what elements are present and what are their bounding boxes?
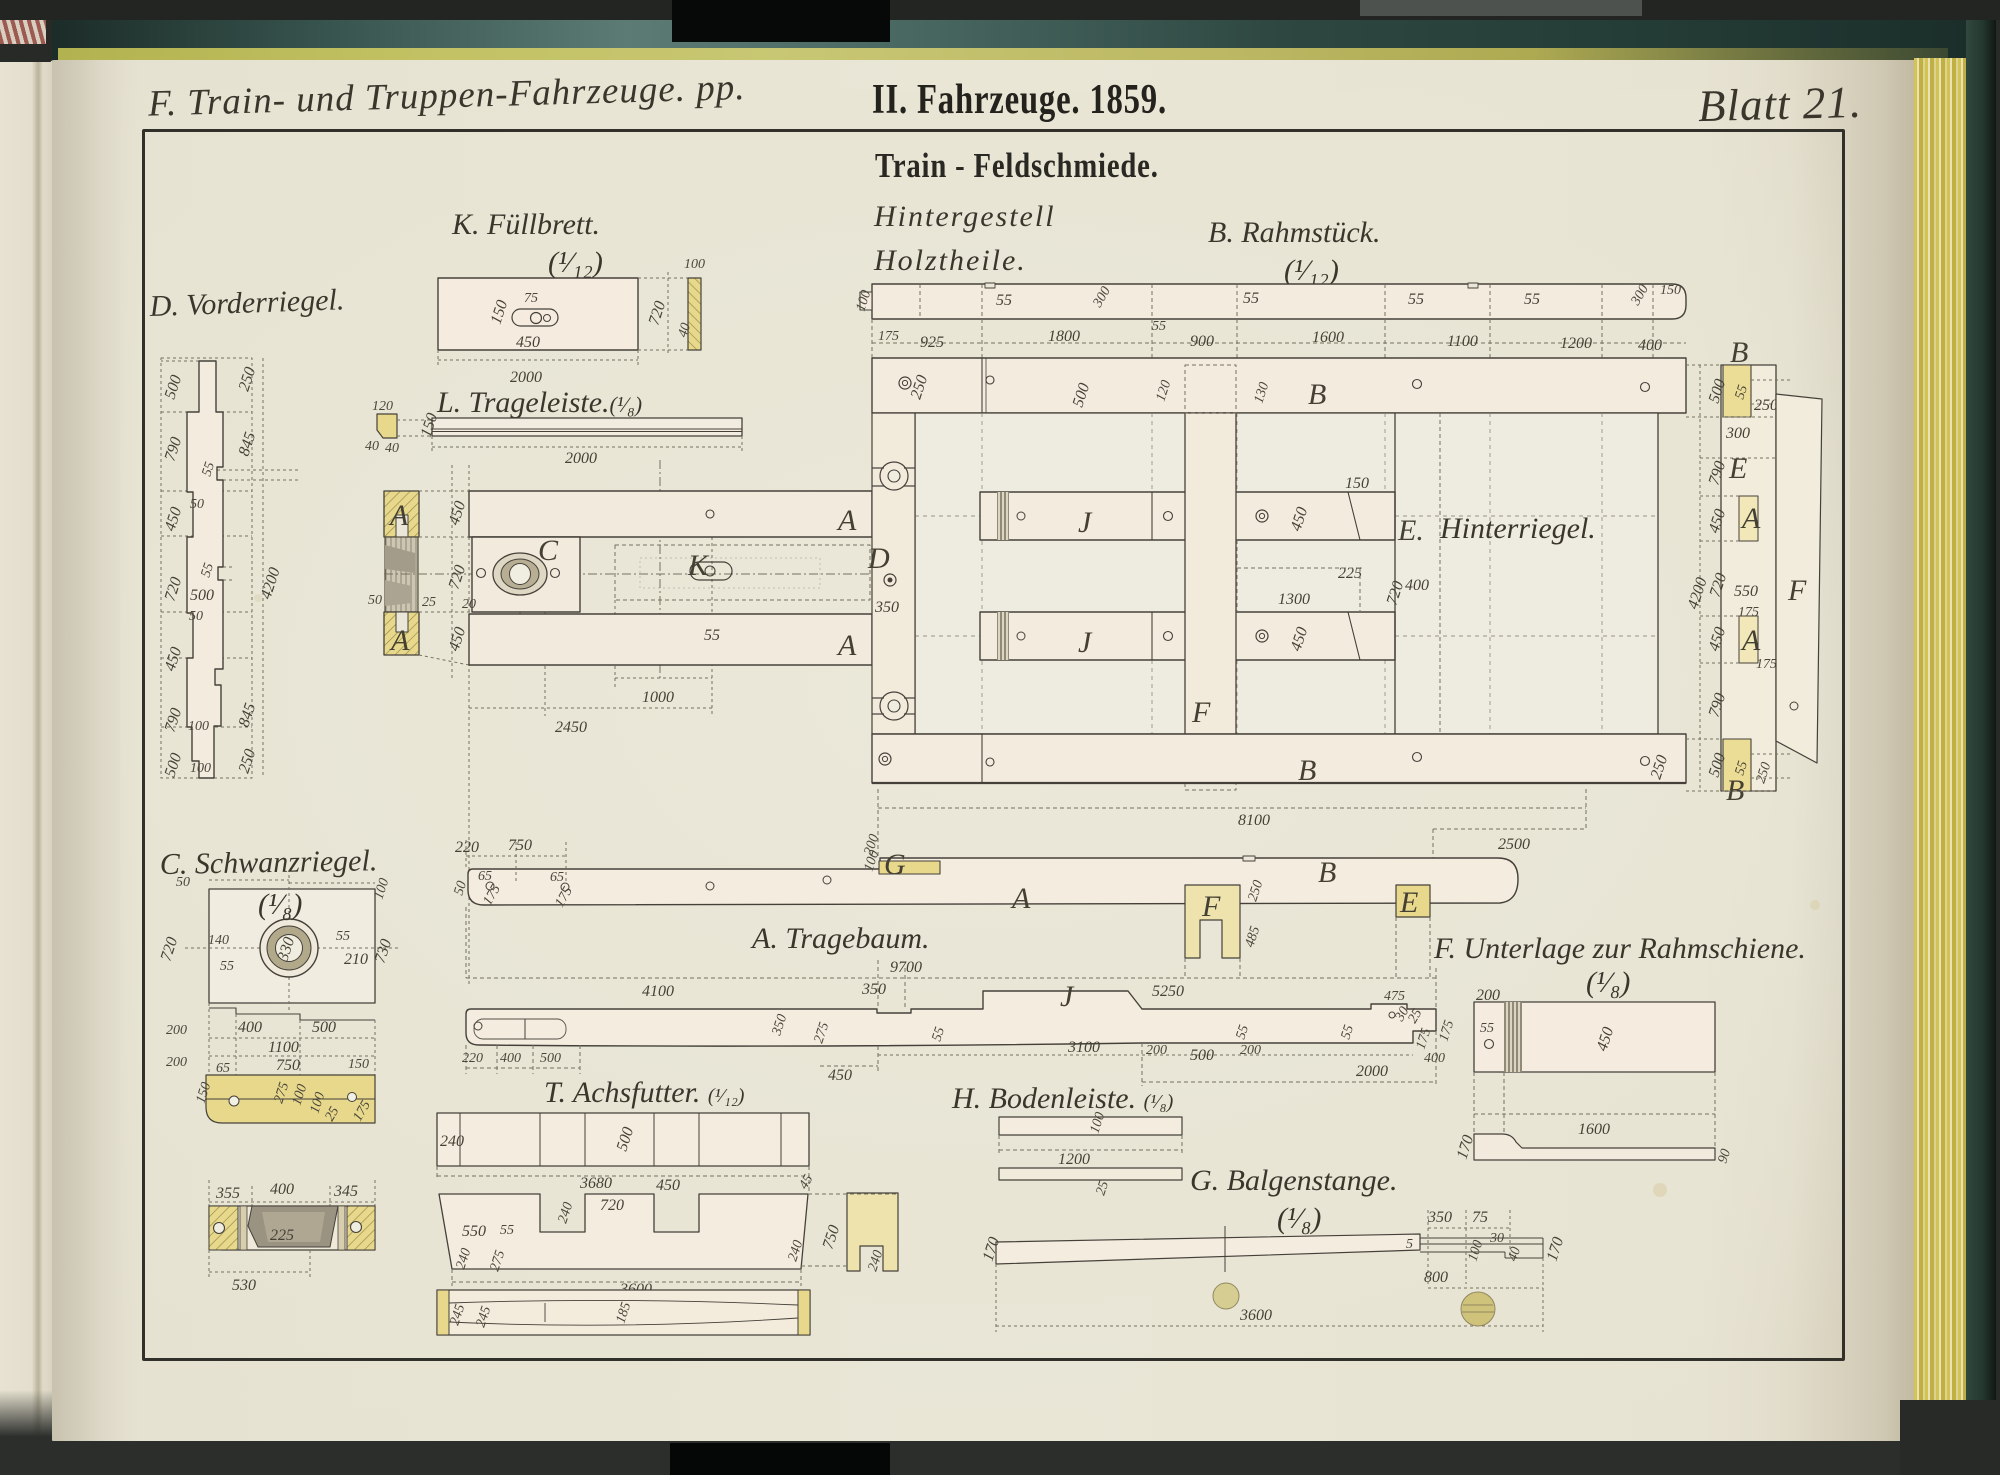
svg-text:175: 175 [1756, 657, 1777, 672]
svg-text:(¹⁄₁₂): (¹⁄₁₂) [548, 246, 603, 279]
svg-text:Holztheile.: Holztheile. [873, 244, 1027, 277]
svg-text:750: 750 [820, 1223, 844, 1251]
svg-text:(¹⁄₈): (¹⁄₈) [1586, 966, 1630, 999]
svg-text:450: 450 [656, 1177, 680, 1194]
svg-text:4100: 4100 [642, 983, 674, 1000]
svg-text:55: 55 [1152, 319, 1166, 334]
svg-text:355: 355 [215, 1185, 240, 1202]
svg-text:8100: 8100 [1238, 812, 1270, 829]
svg-text:400: 400 [1638, 337, 1662, 354]
svg-text:400: 400 [1424, 1051, 1445, 1066]
svg-text:200: 200 [166, 1023, 187, 1038]
svg-text:450: 450 [516, 334, 540, 351]
svg-text:1100: 1100 [1447, 333, 1478, 350]
svg-text:750: 750 [276, 1057, 300, 1074]
svg-text:C: C [538, 534, 559, 567]
svg-text:720: 720 [158, 935, 182, 963]
svg-text:120: 120 [372, 399, 393, 414]
svg-text:1600: 1600 [1312, 329, 1344, 346]
svg-text:Hintergestell: Hintergestell [873, 200, 1056, 233]
svg-text:3100: 3100 [1067, 1039, 1100, 1056]
svg-text:175: 175 [1738, 605, 1759, 620]
svg-text:25: 25 [1094, 1179, 1113, 1197]
svg-text:A: A [389, 624, 410, 657]
svg-text:100: 100 [372, 877, 393, 902]
svg-text:1000: 1000 [642, 689, 674, 706]
svg-text:F: F [1201, 890, 1221, 923]
svg-text:1200: 1200 [1560, 335, 1592, 352]
svg-text:450: 450 [828, 1067, 852, 1084]
svg-text:2000: 2000 [565, 450, 597, 467]
svg-text:500: 500 [540, 1051, 561, 1066]
svg-text:150: 150 [1660, 283, 1681, 298]
svg-text:800: 800 [1424, 1269, 1448, 1286]
svg-text:A: A [388, 499, 409, 532]
svg-text:350: 350 [874, 599, 899, 616]
svg-text:500: 500 [312, 1019, 336, 1036]
svg-text:75: 75 [1472, 1209, 1488, 1226]
svg-text:350: 350 [861, 981, 886, 998]
svg-text:(¹⁄₁₂): (¹⁄₁₂) [1284, 254, 1339, 287]
svg-text:E: E [1728, 452, 1747, 485]
svg-text:E: E [1399, 886, 1418, 919]
svg-text:200: 200 [1240, 1043, 1261, 1058]
svg-text:65: 65 [550, 870, 564, 885]
svg-text:400: 400 [500, 1051, 521, 1066]
svg-text:790: 790 [162, 706, 186, 734]
svg-text:845: 845 [236, 701, 260, 729]
svg-text:1200: 1200 [1058, 1151, 1090, 1168]
svg-text:475: 475 [1384, 989, 1405, 1004]
svg-text:450: 450 [162, 505, 186, 533]
svg-text:250: 250 [236, 747, 260, 775]
svg-text:A: A [1010, 882, 1031, 915]
svg-text:55: 55 [1408, 291, 1424, 308]
svg-text:Hinterriegel.: Hinterriegel. [1439, 512, 1596, 545]
svg-text:350: 350 [1427, 1209, 1452, 1226]
svg-text:450: 450 [162, 645, 186, 673]
svg-text:900: 900 [1190, 333, 1214, 350]
svg-text:1600: 1600 [1578, 1121, 1610, 1138]
svg-text:100: 100 [190, 761, 211, 776]
svg-text:65: 65 [478, 869, 492, 884]
svg-text:55: 55 [336, 929, 350, 944]
svg-text:55: 55 [704, 627, 720, 644]
svg-text:450: 450 [446, 499, 470, 527]
svg-text:220: 220 [462, 1051, 483, 1066]
svg-text:T. Achsfutter. (¹⁄₁₂): T. Achsfutter. (¹⁄₁₂) [544, 1076, 745, 1109]
svg-text:G: G [884, 848, 906, 881]
svg-text:55: 55 [500, 1223, 514, 1238]
svg-text:55: 55 [1243, 290, 1259, 307]
svg-text:2500: 2500 [1498, 836, 1530, 853]
svg-text:J: J [1078, 506, 1093, 539]
svg-text:300: 300 [1725, 425, 1750, 442]
svg-text:250: 250 [1754, 397, 1778, 414]
svg-text:3600: 3600 [1239, 1307, 1272, 1324]
svg-text:F. Unterlage zur Rahmschiene.: F. Unterlage zur Rahmschiene. [1433, 932, 1806, 965]
svg-text:45: 45 [796, 1172, 816, 1192]
svg-text:A: A [1740, 502, 1761, 535]
svg-text:5: 5 [1406, 1237, 1413, 1252]
svg-text:790: 790 [162, 435, 186, 463]
svg-text:720: 720 [646, 299, 670, 327]
svg-text:200: 200 [166, 1055, 187, 1070]
svg-text:4200: 4200 [258, 566, 284, 602]
svg-text:720: 720 [600, 1197, 624, 1214]
svg-text:J: J [1078, 626, 1093, 659]
svg-text:30: 30 [1489, 1231, 1504, 1246]
svg-text:A. Tragebaum.: A. Tragebaum. [750, 922, 930, 955]
svg-text:485: 485 [1243, 925, 1264, 950]
svg-text:400: 400 [1405, 577, 1429, 594]
svg-text:55: 55 [1480, 1021, 1494, 1036]
svg-text:200: 200 [1146, 1043, 1167, 1058]
svg-text:E.: E. [1397, 514, 1424, 547]
svg-text:9700: 9700 [890, 959, 922, 976]
svg-text:550: 550 [1734, 583, 1758, 600]
svg-text:500: 500 [1190, 1047, 1214, 1064]
svg-text:175: 175 [878, 329, 899, 344]
svg-text:750: 750 [508, 837, 532, 854]
svg-text:150: 150 [1345, 475, 1369, 492]
svg-text:500: 500 [162, 373, 186, 401]
svg-text:40: 40 [1506, 1245, 1525, 1263]
svg-text:220: 220 [455, 839, 479, 856]
svg-text:170: 170 [1544, 1235, 1568, 1263]
svg-text:240: 240 [556, 1201, 577, 1226]
svg-text:G. Balgenstange.: G. Balgenstange. [1190, 1164, 1397, 1197]
svg-text:1100: 1100 [268, 1039, 299, 1056]
svg-text:D: D [867, 542, 890, 575]
svg-text:B: B [1318, 856, 1336, 889]
svg-text:K: K [687, 549, 710, 582]
svg-text:210: 210 [344, 951, 368, 968]
svg-text:3680: 3680 [579, 1175, 612, 1192]
svg-text:50: 50 [368, 593, 382, 608]
svg-text:250: 250 [236, 365, 260, 393]
svg-text:2000: 2000 [1356, 1063, 1388, 1080]
svg-text:845: 845 [236, 430, 260, 458]
svg-text:(¹⁄₈): (¹⁄₈) [1277, 1202, 1321, 1235]
svg-text:1800: 1800 [1048, 328, 1080, 345]
svg-text:25: 25 [422, 595, 436, 610]
svg-text:500: 500 [190, 587, 214, 604]
svg-text:225: 225 [270, 1227, 294, 1244]
svg-text:(¹⁄₈): (¹⁄₈) [258, 888, 302, 921]
svg-text:L. Trageleiste.(¹⁄₈): L. Trageleiste.(¹⁄₈) [436, 386, 642, 419]
svg-text:A: A [836, 504, 857, 537]
svg-text:90: 90 [1716, 1147, 1735, 1165]
svg-text:720: 720 [162, 575, 186, 603]
svg-text:65: 65 [216, 1061, 230, 1076]
svg-text:240: 240 [440, 1133, 464, 1150]
svg-text:150: 150 [348, 1057, 369, 1072]
svg-text:100: 100 [684, 257, 705, 272]
svg-text:J: J [1060, 980, 1075, 1013]
svg-text:550: 550 [462, 1223, 486, 1240]
svg-text:400: 400 [270, 1181, 294, 1198]
svg-text:140: 140 [208, 933, 229, 948]
svg-text:55: 55 [220, 959, 234, 974]
svg-text:A: A [836, 629, 857, 662]
svg-text:F: F [1787, 574, 1807, 607]
svg-text:H. Bodenleiste. (¹⁄₈): H. Bodenleiste. (¹⁄₈) [951, 1082, 1174, 1115]
svg-text:720: 720 [446, 563, 470, 591]
svg-text:5250: 5250 [1152, 983, 1184, 1000]
svg-text:20: 20 [462, 597, 476, 612]
svg-text:2450: 2450 [555, 719, 587, 736]
svg-text:40: 40 [385, 441, 399, 456]
svg-text:50: 50 [189, 609, 203, 624]
svg-text:400: 400 [238, 1019, 262, 1036]
svg-text:B: B [1308, 378, 1326, 411]
svg-text:55: 55 [996, 292, 1012, 309]
svg-text:A: A [1740, 624, 1761, 657]
svg-text:F: F [1191, 696, 1211, 729]
svg-text:B. Rahmstück.: B. Rahmstück. [1208, 216, 1380, 249]
svg-text:450: 450 [446, 625, 470, 653]
svg-text:C. Schwanzriegel.: C. Schwanzriegel. [160, 844, 378, 881]
svg-text:1300: 1300 [1278, 591, 1310, 608]
svg-text:50: 50 [176, 875, 190, 890]
svg-text:100: 100 [188, 719, 209, 734]
svg-text:345: 345 [333, 1183, 358, 1200]
svg-text:500: 500 [162, 751, 186, 779]
svg-text:K. Füllbrett.: K. Füllbrett. [451, 208, 600, 241]
svg-text:100: 100 [1466, 1239, 1487, 1264]
svg-text:175: 175 [1437, 1019, 1458, 1044]
svg-text:55: 55 [1524, 291, 1540, 308]
svg-text:925: 925 [920, 334, 944, 351]
svg-text:B: B [1730, 336, 1748, 369]
svg-text:2000: 2000 [510, 369, 542, 386]
svg-text:D. Vorderriegel.: D. Vorderriegel. [148, 283, 345, 323]
svg-text:50: 50 [190, 497, 204, 512]
svg-text:40: 40 [365, 439, 379, 454]
svg-text:75: 75 [524, 291, 538, 306]
svg-text:530: 530 [232, 1277, 256, 1294]
